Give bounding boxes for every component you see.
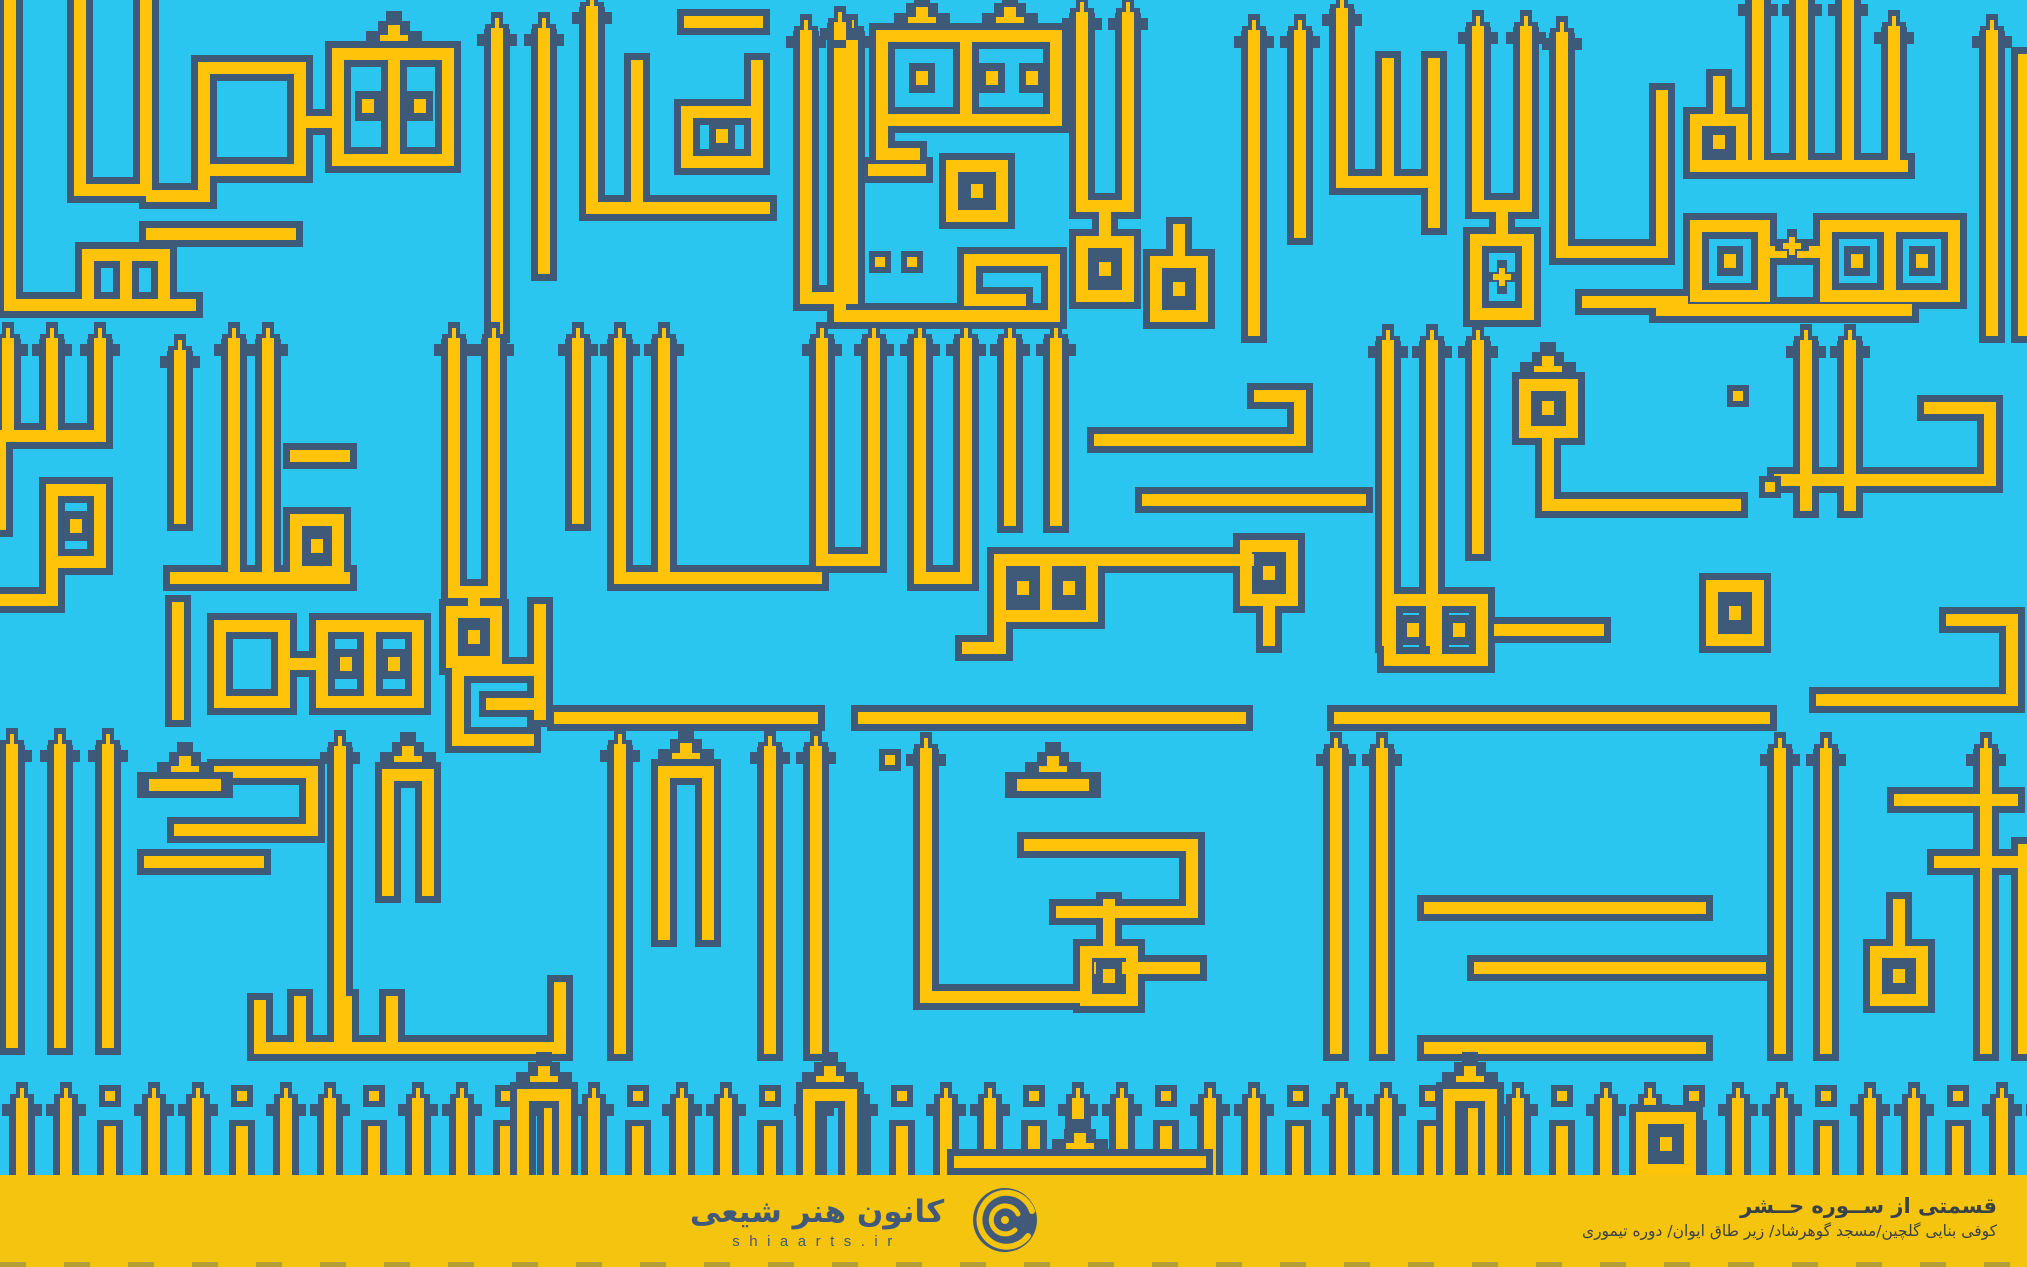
credit-subtitle: کوفی بنایی گلچین/مسجد گوهرشاد/ زیر طاق ا… (1582, 1219, 1997, 1243)
kufic-poster: کانون هنر شیعی shiaarts.ir قسمتی از ســو… (0, 0, 2027, 1267)
brand-block: کانون هنر شیعی shiaarts.ir (677, 1195, 957, 1250)
footer-bar: کانون هنر شیعی shiaarts.ir قسمتی از ســو… (0, 1175, 2027, 1267)
credit-title: قسمتی از ســوره حــشر (1582, 1193, 1997, 1219)
credits-block: قسمتی از ســوره حــشر کوفی بنایی گلچین/م… (1582, 1193, 1997, 1243)
swirl-logo-icon (971, 1186, 1039, 1254)
brand-wordmark: کانون هنر شیعی (677, 1195, 957, 1229)
kufic-artwork (0, 0, 2027, 1267)
brand-domain: shiaarts.ir (677, 1233, 957, 1250)
